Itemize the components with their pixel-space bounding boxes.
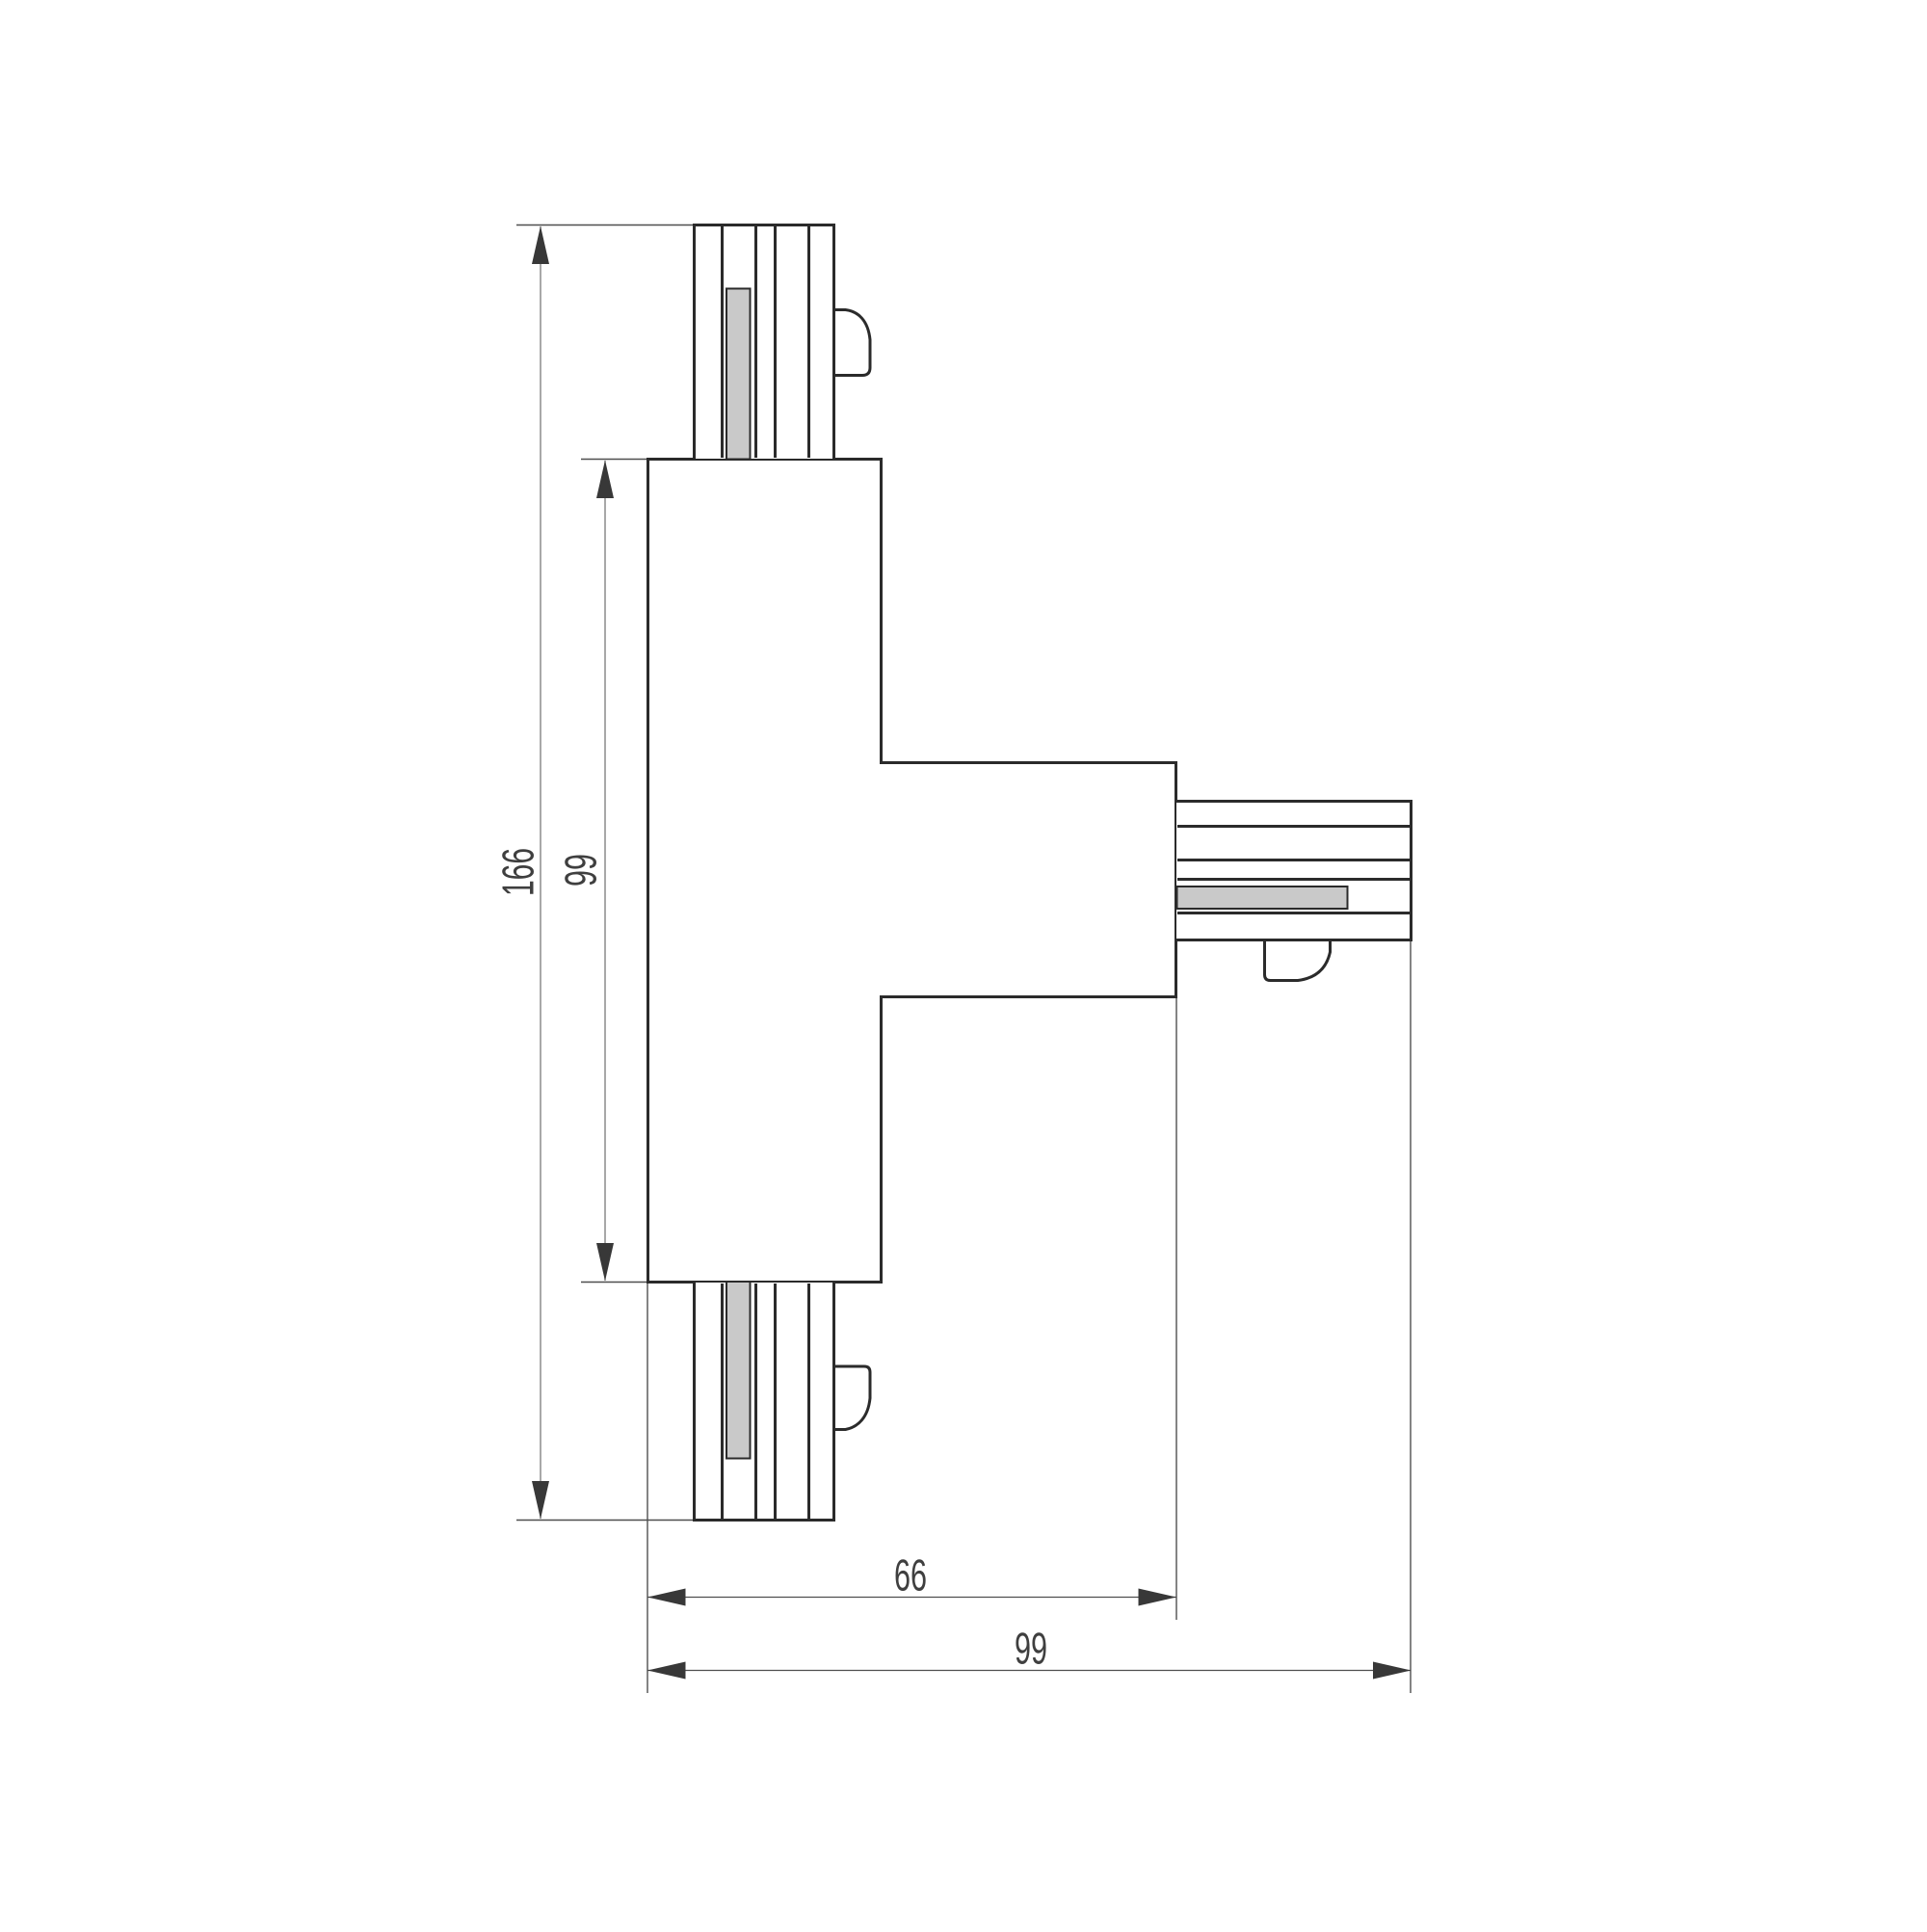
svg-text:99: 99: [1015, 1624, 1047, 1674]
svg-text:99: 99: [556, 854, 606, 887]
svg-text:166: 166: [493, 848, 543, 896]
svg-text:66: 66: [894, 1550, 927, 1601]
